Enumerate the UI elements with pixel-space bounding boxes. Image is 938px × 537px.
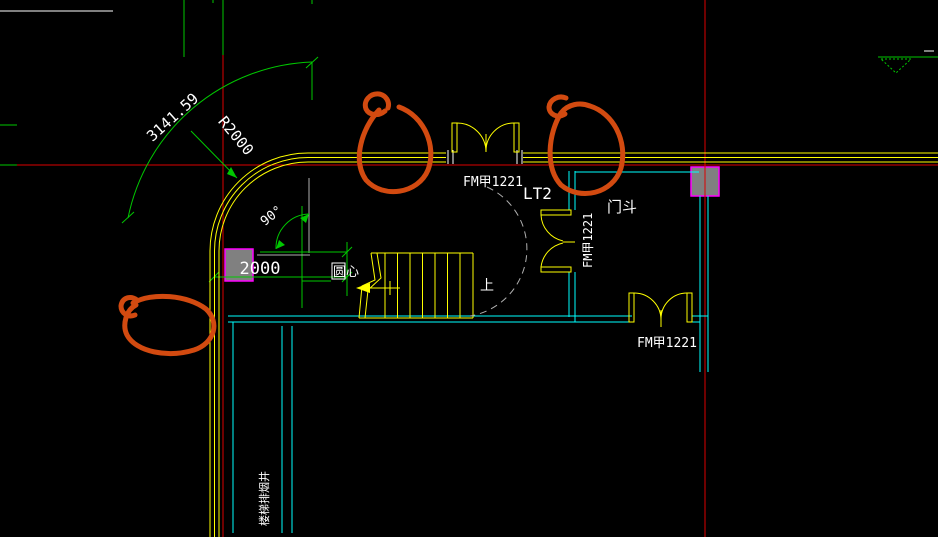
- circle-center-label: 圆心: [302, 263, 359, 281]
- door-side-double: [541, 210, 575, 272]
- arc-length-dimension: 3141.59: [122, 57, 318, 223]
- dim-arc-length: 3141.59: [143, 89, 202, 145]
- dim-radius: R2000: [214, 113, 257, 159]
- markup-circle-left: [121, 296, 214, 353]
- exterior-walls: [210, 150, 938, 537]
- door-top-double: [452, 123, 519, 152]
- door-jamb-lines: [448, 150, 522, 164]
- up-label: 上: [480, 278, 494, 294]
- partition-walls: [228, 171, 708, 533]
- dim-angle: 90°: [258, 203, 286, 229]
- level-marker-symbol: [878, 57, 938, 73]
- door-bottom-double: [629, 293, 692, 327]
- door-side-label: FM甲1221: [581, 213, 595, 268]
- door-bottom-label: FM甲1221: [637, 336, 697, 351]
- stair-run: [356, 253, 473, 318]
- cad-drawing[interactable]: 3141.59 R2000 90° 2000: [0, 0, 938, 537]
- reference-marks: [0, 11, 934, 255]
- markup-circle-top-center: [359, 94, 430, 192]
- markup-annotations: [121, 94, 623, 354]
- vestibule-label: 门斗: [607, 198, 637, 216]
- stair-id-label: LT2: [523, 184, 552, 203]
- axis-grid-lines: [17, 0, 938, 537]
- angle-dimension: 90°: [258, 203, 309, 249]
- dim-offset: 2000: [240, 259, 281, 279]
- door-top-label: FM甲1221: [463, 175, 523, 190]
- stair-direction-arrow: [356, 281, 400, 295]
- markup-circle-top-right: [549, 97, 623, 194]
- shaft-label: 楼梯排烟井: [257, 471, 271, 526]
- text-labels: FM甲1221 LT2 门斗 FM甲1221 FM甲1221 上 楼梯排烟井: [257, 175, 697, 526]
- radius-dimension: R2000: [191, 113, 257, 178]
- circle-center-text: 圆心: [333, 265, 359, 280]
- cad-viewport[interactable]: 3141.59 R2000 90° 2000: [0, 0, 938, 537]
- stair-walking-line: [470, 187, 527, 316]
